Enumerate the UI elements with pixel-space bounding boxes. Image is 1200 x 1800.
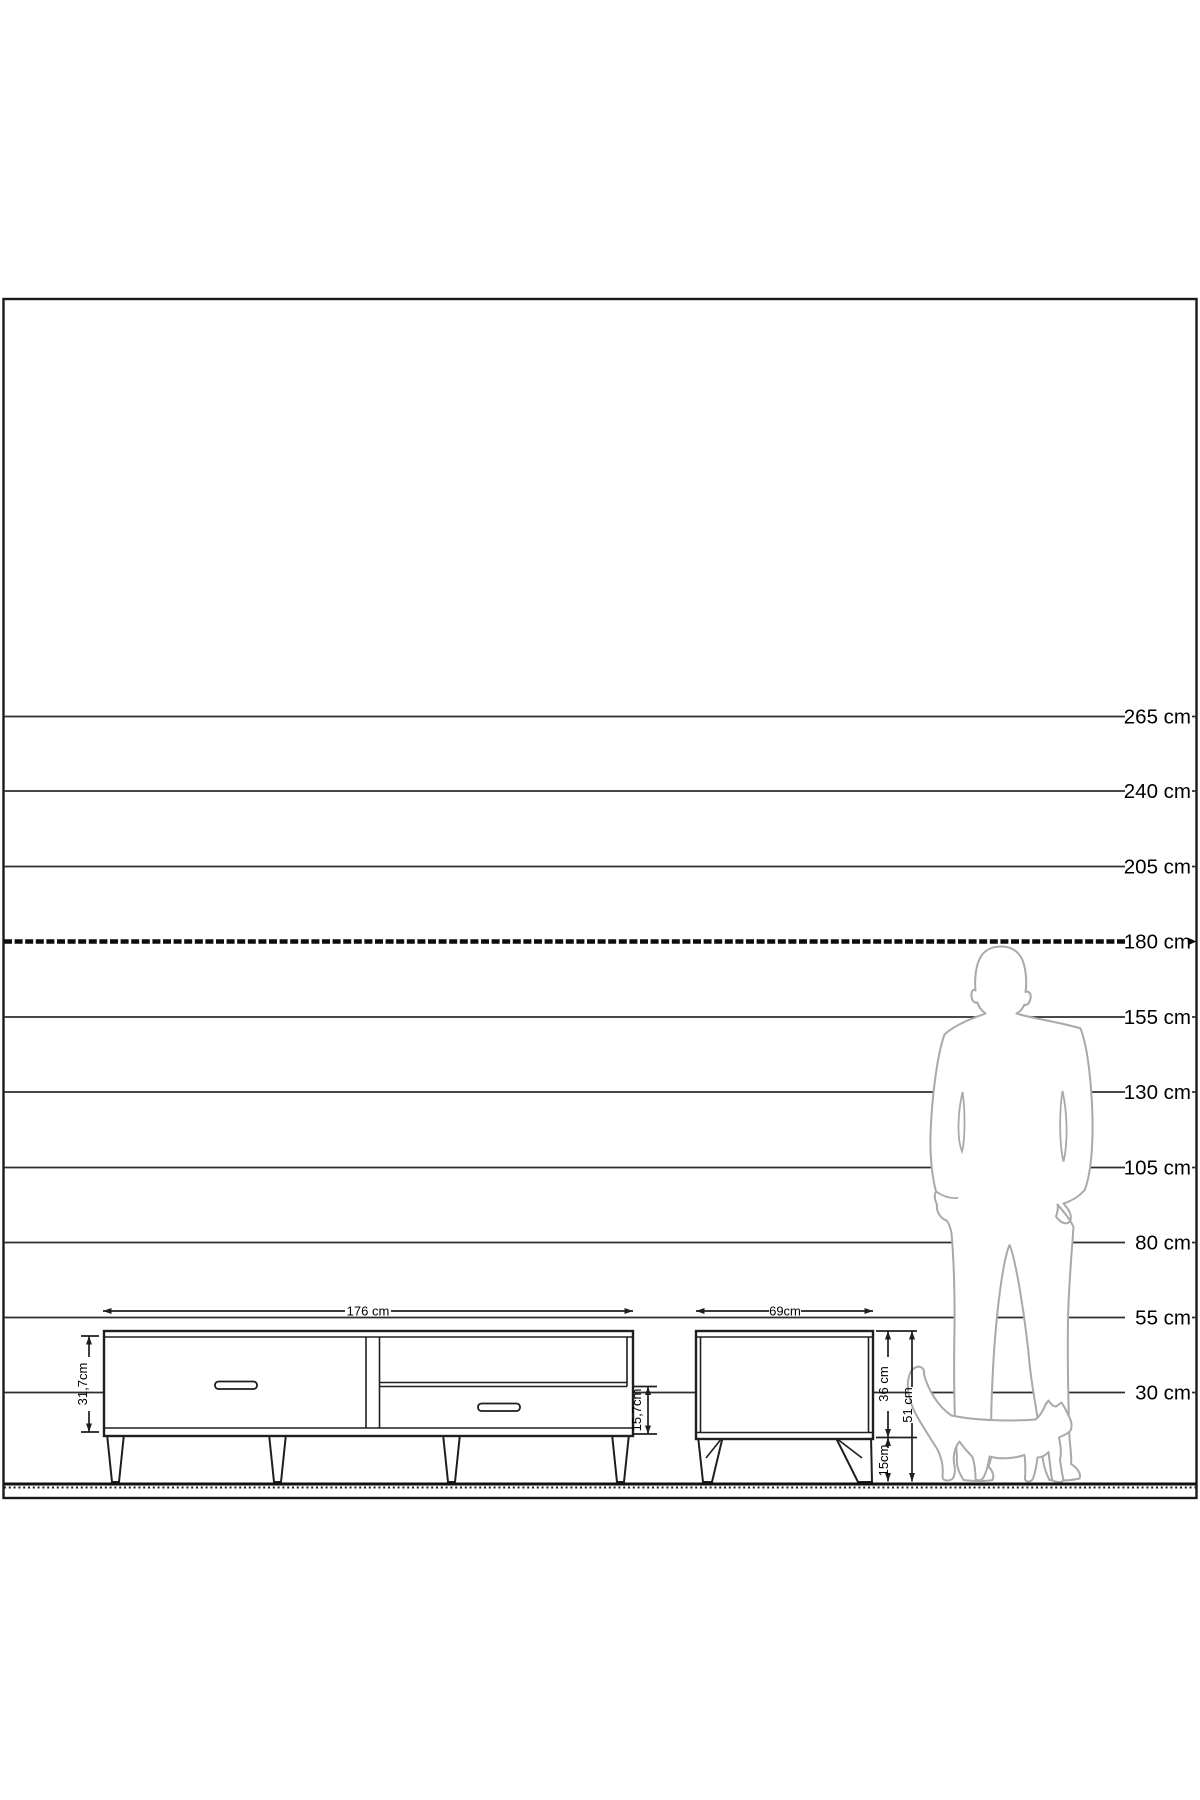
scale-label-55: 55 cm [1135,1307,1191,1330]
side-total-height-label: 51 cm [900,1387,915,1422]
scale-label-265: 265 cm [1124,706,1191,729]
ground-line [4,1484,1196,1488]
drawer-height-label: 15,7cm [629,1389,644,1432]
man-silhouette [930,947,1092,1481]
side-table-body [696,1331,873,1439]
tv-height-label: 31,7cm [75,1363,90,1406]
man-outline [930,947,1092,1481]
scale-diagram-page: 265 cm 240 cm 205 cm 180 cm 155 cm 130 c… [0,0,1200,1800]
side-body-height-label: 36 cm [876,1366,891,1401]
furniture-scale-diagram: 265 cm 240 cm 205 cm 180 cm 155 cm 130 c… [0,0,1200,1800]
scale-label-240: 240 cm [1124,780,1191,803]
side-leg-height-label: 15cm [876,1445,891,1477]
tv-stand-leg-1 [107,1434,124,1482]
tv-stand [104,1331,633,1482]
side-table-leg-right [835,1436,872,1482]
tv-stand-drawer-handle [478,1404,520,1412]
tv-width-label: 176 cm [347,1304,390,1319]
scale-label-205: 205 cm [1124,856,1191,879]
side-width-label: 69cm [769,1304,801,1319]
tv-stand-door-handle [215,1382,257,1390]
tv-stand-leg-3 [443,1434,460,1482]
scale-label-130: 130 cm [1124,1081,1191,1104]
tv-stand-leg-4 [612,1434,629,1482]
tv-stand-body [104,1331,633,1436]
scale-label-180: 180 cm [1124,931,1191,954]
scale-label-155: 155 cm [1124,1006,1191,1029]
scale-label-30: 30 cm [1135,1382,1191,1405]
side-table-leg-left [698,1436,723,1482]
side-table [696,1331,873,1482]
scale-label-80: 80 cm [1135,1232,1191,1255]
scale-label-105: 105 cm [1124,1157,1191,1180]
tv-stand-leg-2 [269,1434,286,1482]
